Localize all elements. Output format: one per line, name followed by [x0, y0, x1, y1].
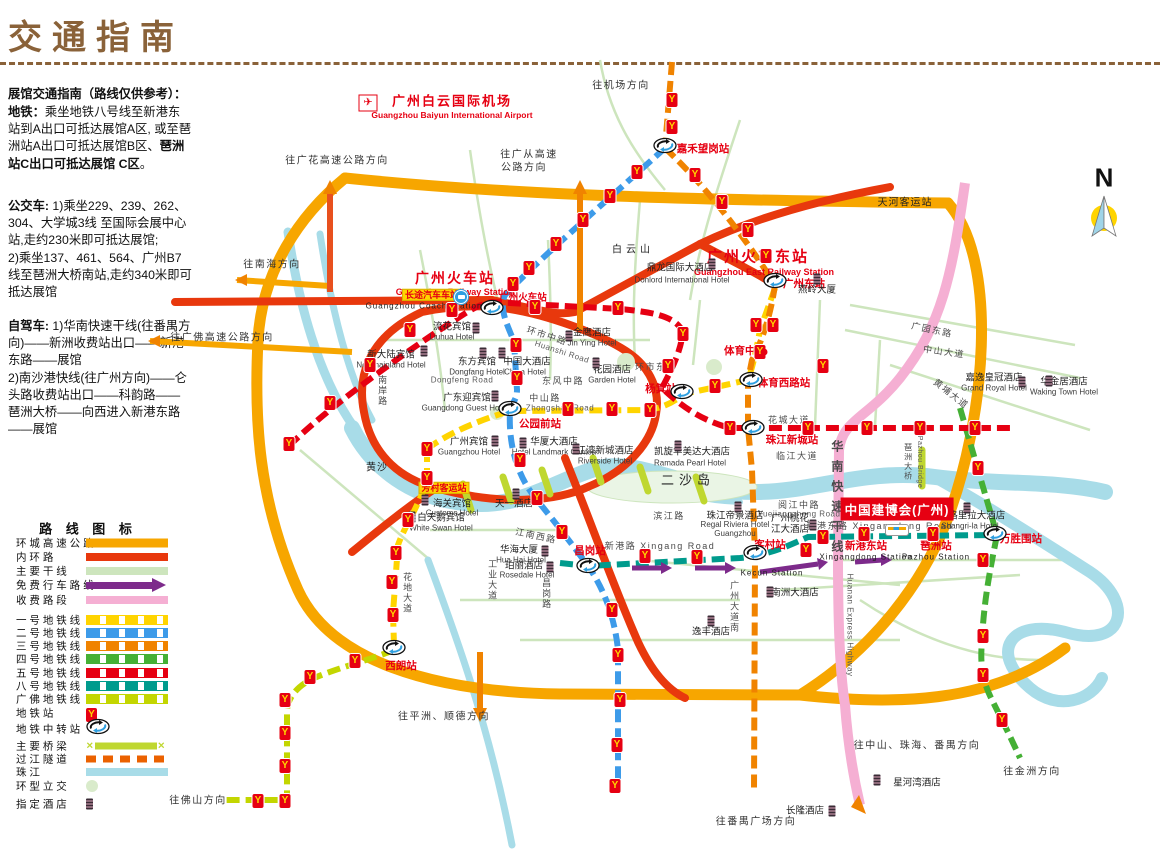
- hotel-label-en: Grand Royal Hotel: [961, 383, 1027, 392]
- hotel-label-en: Donlord International Hotel: [634, 275, 729, 284]
- direction-label: 往番禺广场方向: [716, 816, 797, 828]
- road-label: 中山路: [529, 393, 561, 403]
- legend-swatch-hotel: [86, 799, 168, 810]
- legend-metro-bar: [86, 694, 168, 704]
- direction-label: 往南海方向: [243, 259, 301, 271]
- legend-item-label: 内 环 路: [16, 550, 53, 565]
- metro-station-icon: Y: [978, 668, 989, 682]
- legend-swatch-metro: [86, 654, 168, 664]
- metro-station-icon: Y: [563, 402, 574, 416]
- major-station-label: 广州火车东站: [707, 248, 809, 265]
- metro-station-icon: Y: [859, 527, 870, 541]
- legend-color-bar: [86, 553, 168, 561]
- direction-label: 往佛山方向: [169, 795, 227, 807]
- metro-station-icon: Y: [725, 421, 736, 435]
- hotel-icon: [735, 502, 742, 513]
- station-label: 嘉禾望岗站: [677, 143, 730, 155]
- map-label: Kecun Station: [741, 568, 804, 577]
- legend-arrow: [86, 578, 168, 592]
- hotel-label: 鼎龙国际大酒店: [647, 264, 714, 275]
- metro-station-icon: Y: [305, 670, 316, 684]
- metro-station-icon: Y: [447, 303, 458, 317]
- ring-expressway: [257, 178, 1065, 700]
- legend-swatch-transfer: [86, 719, 168, 740]
- station-label: 公园前站: [519, 418, 561, 430]
- metro-station-icon: Y: [551, 237, 562, 251]
- metro-station-icon: Y: [801, 543, 812, 557]
- hotel-icon: [547, 562, 554, 573]
- legend-swatch-tunnel: [86, 756, 168, 763]
- hotel-label-en: Waking Town Hotel: [1030, 387, 1098, 396]
- metro-transfer-icon: [382, 640, 406, 661]
- compass-north-label: N: [1095, 163, 1114, 194]
- bus-icon: [885, 524, 909, 536]
- hotel-label-en: Regal Riviera Hotel Guangzhou: [701, 520, 770, 538]
- metro-station-icon: Y: [692, 550, 703, 564]
- metro-transfer-icon: [670, 384, 694, 405]
- metro-station-icon: Y: [613, 301, 624, 315]
- legend-item-label: 主 要 干 线: [16, 564, 67, 579]
- hotel-icon: [422, 495, 429, 506]
- legend-swatch-metro: [86, 615, 168, 625]
- metro-station-icon: Y: [761, 249, 772, 263]
- legend-swatch-metro: [86, 681, 168, 691]
- metro-station-icon: Y: [422, 442, 433, 456]
- hotel-label-en: Guangzhou Hotel: [438, 447, 500, 456]
- metro-station-icon: Y: [768, 318, 779, 332]
- legend-transfer-icon: [86, 722, 110, 739]
- arrow-huanan-south: [851, 795, 866, 814]
- coach-station-label: 长途汽车车站: [402, 289, 462, 301]
- hotel-label-en: Riverside Hotel: [578, 456, 632, 465]
- road-label: 滨江路: [653, 511, 685, 521]
- hotel-icon: [573, 444, 580, 455]
- hotel-icon: [473, 323, 480, 334]
- hotel-label: 星河湾酒店: [893, 779, 941, 790]
- hotel-icon: [542, 546, 549, 557]
- road-label: 琶洲大桥: [903, 443, 912, 481]
- road-label: 临江大道: [776, 451, 818, 461]
- hotel-icon: [708, 616, 715, 627]
- hotel-icon: [593, 358, 600, 369]
- metro-station-icon: Y: [403, 513, 414, 527]
- airport-icon: ✈: [359, 95, 378, 112]
- direction-label: 往金洲方向: [1003, 766, 1061, 778]
- metro-station-icon: Y: [632, 165, 643, 179]
- metro-station-icon: Y: [640, 549, 651, 563]
- hotel-icon: [964, 503, 971, 514]
- metro-station-icon: Y: [818, 359, 829, 373]
- metro-station-icon: Y: [751, 318, 762, 332]
- metro-station-icon: Y: [973, 461, 984, 475]
- metro-station-icon: Y: [557, 525, 568, 539]
- direction-label: 往机场方向: [592, 80, 650, 92]
- road-label: Pazhou Bridge: [915, 436, 923, 488]
- legend-metro-bar: [86, 628, 168, 638]
- legend-metro-bar: [86, 681, 168, 691]
- legend-item-label: 免 费 行 车 路 线: [16, 578, 94, 593]
- hotel-label: 广州桃花 江大酒店: [771, 514, 809, 536]
- station-label: 珠江新城站: [766, 434, 819, 446]
- metro-station-icon: Y: [667, 93, 678, 107]
- hotel-label-en: Garden Hotel: [588, 375, 636, 384]
- metro-station-icon: Y: [803, 421, 814, 435]
- metro-station-icon: Y: [325, 396, 336, 410]
- station-label: 体育西路站: [758, 377, 811, 389]
- hotel-label-en: China Hotel: [504, 367, 546, 376]
- legend-swatch-arrow: [86, 578, 168, 592]
- map-label: 白云山: [612, 244, 654, 256]
- legend-hotel-icon: [86, 799, 93, 810]
- hotel-label: 天一酒店: [495, 500, 533, 511]
- metro-transfer-icon: [480, 300, 504, 321]
- hotel-icon: [1019, 377, 1026, 388]
- metro-station-icon: Y: [862, 421, 873, 435]
- legend-item-label: 地 铁 中 转 站: [16, 722, 80, 737]
- airport-label-en: Guangzhou Baiyun International Airport: [371, 111, 532, 121]
- metro-station-icon: Y: [605, 189, 616, 203]
- metro-station-icon: Y: [970, 421, 981, 435]
- legend-swatch-metro: [86, 668, 168, 678]
- legend-metro-bar: [86, 668, 168, 678]
- hotel-icon: [480, 348, 487, 359]
- hotel-icon: [499, 348, 506, 359]
- legend-bridge: ✕✕: [86, 741, 168, 752]
- legend-swatch-bridge: ✕✕: [86, 741, 168, 752]
- hotel-icon: [520, 438, 527, 449]
- metro-station-icon: Y: [405, 323, 416, 337]
- hotel-label-en: Liuhua Hotel: [430, 332, 475, 341]
- metro-station-icon: Y: [645, 403, 656, 417]
- map-label: 二沙岛: [661, 474, 715, 489]
- metro-station-icon: Y: [391, 546, 402, 560]
- legend-arrow-head: [152, 578, 166, 592]
- arrow-guangfo-expwy: [148, 335, 160, 347]
- legend-metro-bar: [86, 615, 168, 625]
- hotel-label: 长隆酒店: [786, 807, 824, 818]
- hotel-icon: [767, 587, 774, 598]
- metro-station-icon: Y: [253, 794, 264, 808]
- station-label: 西朗站: [385, 660, 417, 672]
- metro-station-icon: Y: [607, 402, 618, 416]
- metro-station-icon: Y: [530, 300, 541, 314]
- metro-station-icon: Y: [915, 421, 926, 435]
- road-label: 广州大道南: [729, 581, 739, 634]
- hotel-icon: [421, 346, 428, 357]
- metro-transfer-icon: [743, 545, 767, 566]
- legend-item-label: 珠 江: [16, 765, 40, 780]
- map-label: Pazhou Station: [902, 552, 970, 561]
- direction-label: 往中山、珠海、番禺方向: [854, 740, 981, 752]
- legend-item-label: 环 城 高 速 公 路: [16, 536, 94, 551]
- hotel-label-en: White Swan Hotel: [409, 523, 473, 532]
- road-label: Huanan Express Highway: [845, 573, 854, 676]
- hotel-icon: [709, 259, 716, 270]
- hotel-icon: [1046, 376, 1053, 387]
- metro-transfer-icon: [498, 401, 522, 422]
- direction-label: 往平洲、顺德方向: [398, 711, 490, 723]
- legend-roundabout: [86, 780, 98, 792]
- hotel-label-en: Dongfang Hotel: [449, 367, 505, 376]
- legend-color-bar: [86, 768, 168, 776]
- coach-station-icon: [454, 290, 468, 304]
- legend-item-label: 收 费 路 段: [16, 593, 67, 608]
- metro-station-icon: Y: [524, 261, 535, 275]
- hotel-label-en: Jin Ying Hotel: [568, 338, 617, 347]
- legend-swatch-metro: [86, 641, 168, 651]
- legend-color-bar: [86, 567, 168, 575]
- metro-station-icon: Y: [532, 491, 543, 505]
- road-label: Zhongshan Road: [526, 403, 594, 412]
- hotel-icon: [814, 274, 821, 285]
- legend-arrow-bar: [86, 582, 152, 589]
- expo-venue-label: 中国建博会(广州): [841, 498, 954, 521]
- metro-station-icon: Y: [280, 726, 291, 740]
- metro-station-icon: Y: [350, 654, 361, 668]
- hotel-icon: [810, 520, 817, 531]
- legend-item-label: 广 佛 地 铁 线: [16, 692, 80, 707]
- legend-metro-bar: [86, 641, 168, 651]
- road-label: 东风中路: [542, 376, 584, 386]
- legend-swatch-metro: [86, 628, 168, 638]
- station-label: 琶洲站: [920, 540, 952, 552]
- metro-station-icon: Y: [818, 530, 829, 544]
- hotel-icon: [829, 806, 836, 817]
- legend-swatch-solid: [86, 553, 168, 561]
- stadium-dot-icon: [761, 349, 768, 356]
- metro-station-icon: Y: [280, 759, 291, 773]
- legend-metro-bar: [86, 654, 168, 664]
- metro-station-icon: Y: [387, 575, 398, 589]
- legend-color-bar: [86, 596, 168, 604]
- metro-station-icon: Y: [613, 648, 624, 662]
- metro-station-icon: Y: [388, 608, 399, 622]
- metro-station-icon: Y: [978, 553, 989, 567]
- metro-station-icon: Y: [978, 629, 989, 643]
- metro-station-icon: Y: [508, 277, 519, 291]
- hotel-icon: [492, 436, 499, 447]
- metro-station-icon: Y: [997, 713, 1008, 727]
- metro-station-icon: Y: [667, 120, 678, 134]
- hotel-label: 南洲大酒店: [771, 589, 819, 600]
- metro-station-icon: Y: [928, 527, 939, 541]
- road-label: 工业大道: [487, 559, 497, 601]
- metro-station-icon: Y: [717, 195, 728, 209]
- legend-bridge-bar: [95, 743, 157, 750]
- hotel-label: 燕岭大厦: [798, 286, 836, 297]
- legend-swatch-solid: [86, 596, 168, 604]
- metro-station-icon: Y: [615, 693, 626, 707]
- metro-station-icon: Y: [280, 693, 291, 707]
- station-label: 新港东站: [845, 540, 887, 552]
- metro-station-icon: Y: [690, 168, 701, 182]
- metro-station-icon: Y: [512, 371, 523, 385]
- metro-station-icon: Y: [710, 379, 721, 393]
- arrow-nanhai: [235, 274, 247, 286]
- direction-label: 往广花高速公路方向: [285, 155, 389, 167]
- major-station-label: 广州火车站: [415, 270, 495, 286]
- transport-guide-page: 交通指南 展馆交通指南（路线仅供参考）：地铁：乘坐地铁八号线至新港东站到A出口可…: [0, 0, 1160, 851]
- metro-station-icon: Y: [678, 327, 689, 341]
- direction-label: 往广从高速: [500, 149, 558, 161]
- metro-station-icon: Y: [511, 338, 522, 352]
- map-label: 天河客运站: [878, 197, 933, 209]
- hotel-icon: [874, 775, 881, 786]
- hotel-label: 凯旋华美达大酒店: [654, 448, 730, 459]
- metro-transfer-icon: [576, 558, 600, 579]
- metro-station-icon: Y: [607, 603, 618, 617]
- legend-swatch-solid: [86, 539, 168, 548]
- hotel-label: 逸丰酒店: [692, 628, 730, 639]
- hotel-icon: [566, 331, 573, 342]
- metro-station-icon: Y: [365, 358, 376, 372]
- compass-icon: [1091, 196, 1117, 236]
- metro-station-icon: Y: [663, 359, 674, 373]
- map-canvas: [0, 0, 1160, 851]
- metro-station-icon: Y: [280, 794, 291, 808]
- metro-station-icon: Y: [610, 779, 621, 793]
- metro-station-icon: Y: [612, 738, 623, 752]
- metro-transfer-icon: [653, 138, 677, 159]
- legend-swatch-solid: [86, 567, 168, 575]
- legend-item-label: 指 定 酒 店: [16, 797, 67, 812]
- hotel-icon: [513, 489, 520, 500]
- metro-station-icon: Y: [515, 453, 526, 467]
- metro-station-icon: Y: [284, 437, 295, 451]
- road-label: Dongfeng Road: [431, 375, 494, 384]
- metro-transfer-icon: [983, 526, 1007, 547]
- metro-transfer-icon: [739, 372, 763, 393]
- road-label: 花地大道: [402, 572, 412, 614]
- legend-swatch-solid: [86, 768, 168, 776]
- legend-tunnel-bar: [86, 756, 168, 763]
- legend-color-bar: [86, 539, 168, 548]
- metro-station-icon: Y: [743, 223, 754, 237]
- metro-transfer-icon: [741, 420, 765, 441]
- hotel-label-en: Ramada Pearl Hotel: [654, 458, 726, 467]
- direction-label: 公路方向: [501, 162, 547, 174]
- legend-item-label: 环 型 立 交: [16, 779, 67, 794]
- metro-station-icon: Y: [422, 471, 433, 485]
- huanan-expressway: [838, 183, 965, 805]
- hotel-icon: [675, 441, 682, 452]
- road-label: 南岸路: [377, 375, 387, 407]
- legend-item-label: 四 号 地 铁 线: [16, 652, 80, 667]
- metro-station-icon: Y: [578, 213, 589, 227]
- metro-transfer-icon: [763, 273, 787, 294]
- station-label: 昌岗站: [574, 545, 606, 557]
- direction-label: 往广佛高速公路方向: [170, 332, 274, 344]
- legend-item-label: 地 铁 站: [16, 706, 53, 721]
- map-label: 黄沙: [366, 462, 388, 474]
- airport-label: 广州白云国际机场: [392, 95, 512, 110]
- legend-swatch-circle: [86, 780, 168, 792]
- legend-swatch-metro: [86, 694, 168, 704]
- road-label: 昌岗路: [541, 578, 551, 610]
